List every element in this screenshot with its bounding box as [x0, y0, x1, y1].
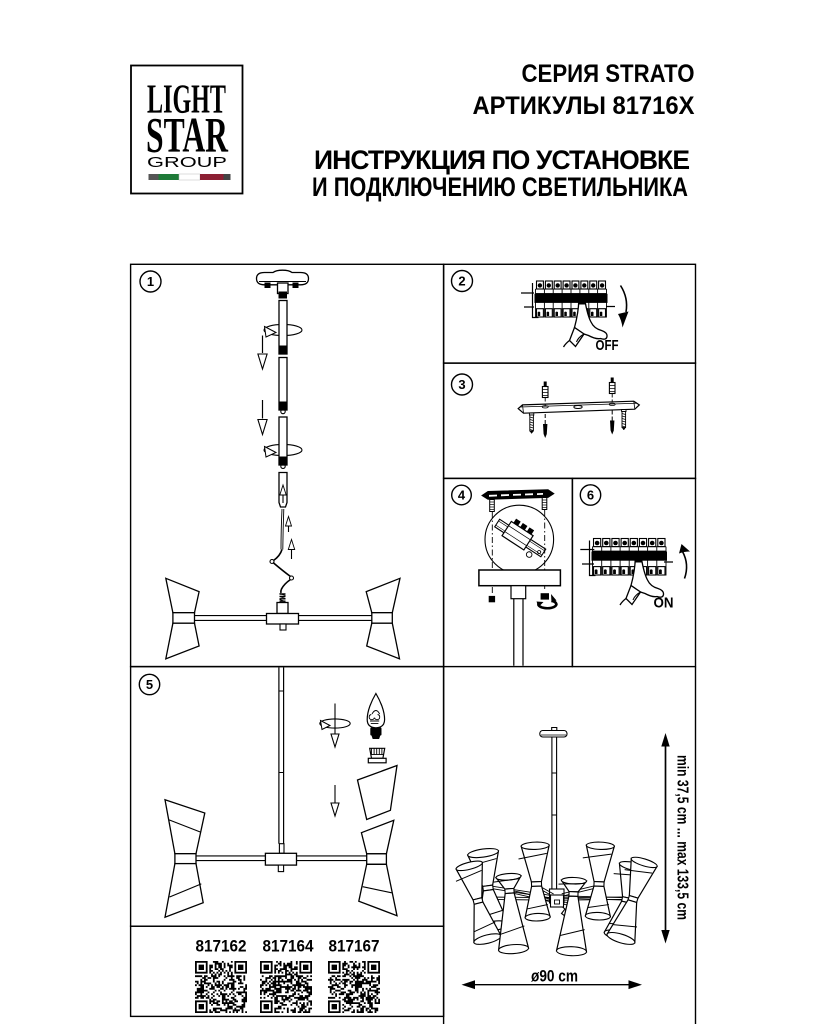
svg-text:АРТИКУЛЫ 81716X: АРТИКУЛЫ 81716X [473, 92, 695, 120]
svg-text:СЕРИЯ STRATO: СЕРИЯ STRATO [522, 60, 695, 88]
svg-text:6: 6 [587, 488, 594, 503]
svg-text:GROUP: GROUP [147, 154, 227, 171]
svg-text:4: 4 [458, 488, 466, 503]
svg-text:ИНСТРУКЦИЯ ПО УСТАНОВКЕ: ИНСТРУКЦИЯ ПО УСТАНОВКЕ [314, 145, 690, 175]
svg-text:1: 1 [147, 274, 154, 289]
svg-text:ON: ON [654, 595, 674, 612]
svg-text:И ПОДКЛЮЧЕНИЮ СВЕТИЛЬНИКА: И ПОДКЛЮЧЕНИЮ СВЕТИЛЬНИКА [312, 172, 688, 202]
svg-text:2: 2 [458, 274, 465, 289]
svg-text:817164: 817164 [263, 937, 314, 956]
svg-text:817162: 817162 [196, 937, 247, 956]
svg-text:817167: 817167 [329, 937, 380, 956]
svg-text:3: 3 [458, 377, 465, 392]
svg-text:OFF: OFF [596, 337, 619, 354]
svg-text:5: 5 [146, 677, 153, 692]
svg-text:ø90 cm: ø90 cm [531, 968, 578, 986]
svg-text:min 37,5 cm ... max 133,5 cm: min 37,5 cm ... max 133,5 cm [674, 755, 691, 920]
